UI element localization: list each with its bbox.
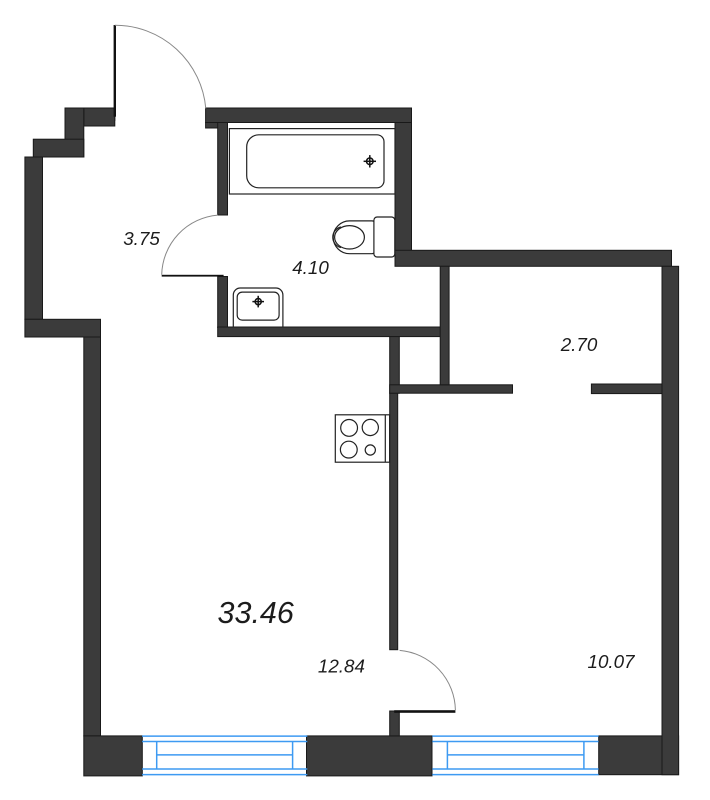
svg-text:33.46: 33.46	[218, 596, 294, 630]
svg-text:4.10: 4.10	[292, 257, 329, 278]
svg-text:10.07: 10.07	[588, 651, 637, 672]
svg-text:2.70: 2.70	[560, 334, 598, 355]
svg-text:3.75: 3.75	[123, 228, 160, 249]
svg-text:12.84: 12.84	[318, 656, 365, 677]
